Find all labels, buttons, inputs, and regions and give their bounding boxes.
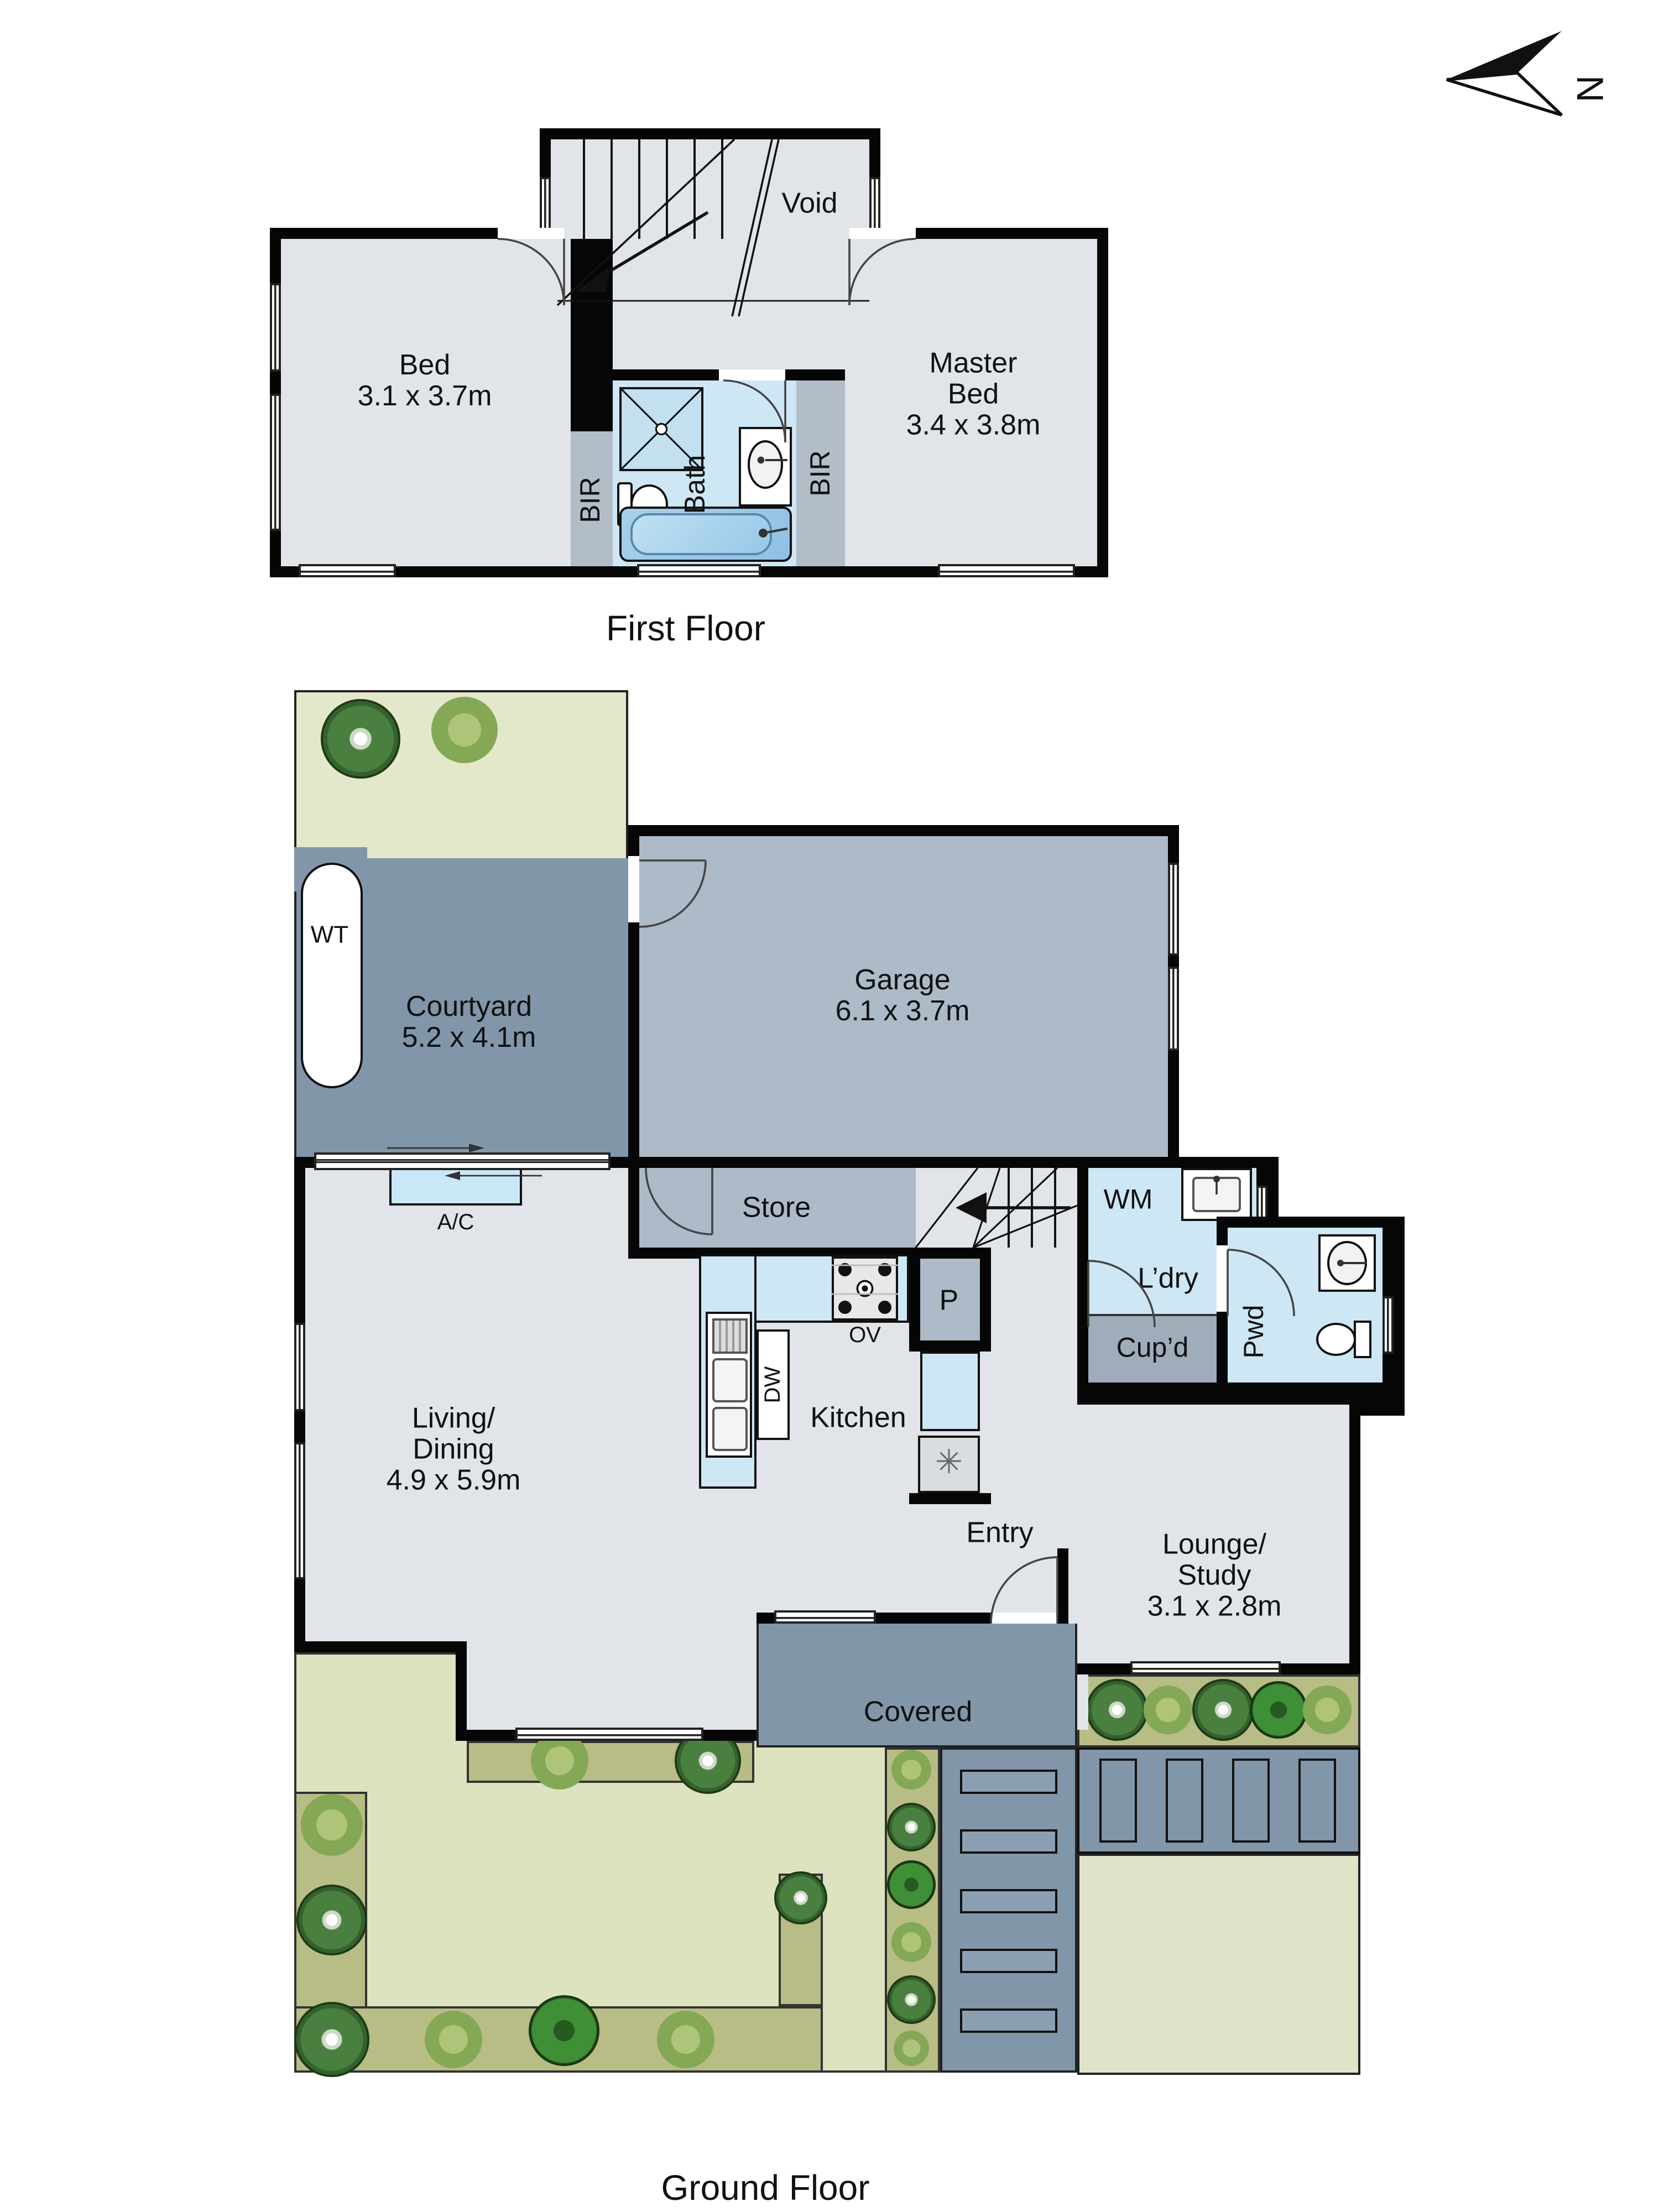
sink-drainer	[711, 1318, 747, 1354]
kitchen-counter-right	[920, 1352, 980, 1431]
dishwasher-label: DW	[761, 1366, 785, 1404]
plant-icon	[1303, 1686, 1352, 1734]
stove-icon	[832, 1256, 898, 1321]
ground-floor-title: Ground Floor	[661, 2173, 869, 2211]
lounge-label: Lounge/ Study 3.1 x 2.8m	[1147, 1529, 1282, 1620]
plant-icon	[529, 1995, 599, 2066]
plant-icon	[887, 1975, 936, 2024]
plant-icon	[321, 699, 400, 779]
courtyard-label: Courtyard 5.2 x 4.1m	[402, 992, 536, 1052]
plant-icon	[774, 1871, 827, 1924]
toilet-cistern-icon	[1354, 1321, 1371, 1358]
north-compass-icon: N	[1433, 13, 1632, 146]
plant-icon	[657, 2011, 714, 2068]
sink-bowl	[711, 1407, 747, 1451]
window	[293, 1442, 306, 1579]
plant-icon	[1192, 1679, 1254, 1741]
doorway	[498, 228, 564, 239]
plant-icon	[431, 697, 498, 763]
window	[299, 565, 396, 577]
gf-stair-treads	[987, 1168, 1077, 1248]
bath-label: Bath	[678, 455, 711, 514]
ff-hall	[573, 239, 845, 380]
bir-left-label: BIR	[575, 477, 606, 523]
deck-plank	[1298, 1759, 1336, 1843]
lounge-right-wall	[1349, 1394, 1360, 1674]
powder-basin-icon	[1327, 1241, 1367, 1285]
window	[269, 283, 281, 372]
stair-landing-gap	[617, 316, 754, 327]
plant-icon	[887, 1860, 936, 1909]
pantry-label: P	[940, 1285, 959, 1316]
first-floor-title: First Floor	[606, 614, 765, 651]
bathtub-inner	[630, 513, 772, 555]
window	[1130, 1662, 1281, 1674]
trough-basin	[1192, 1177, 1241, 1212]
basin-icon	[748, 440, 783, 489]
window	[1381, 1296, 1394, 1354]
kitchen-bottom-wall	[909, 1493, 991, 1504]
doorway	[849, 228, 916, 239]
sliding-door	[314, 1152, 611, 1170]
garage-label: Garage 6.1 x 3.7m	[836, 965, 970, 1026]
covered-porch	[757, 1624, 1077, 1747]
plant-icon	[1250, 1681, 1307, 1739]
deck-plank	[1232, 1759, 1270, 1843]
ac-label: A/C	[437, 1214, 474, 1237]
stepping-stone	[960, 1949, 1057, 1973]
doorway	[628, 856, 639, 922]
wm-label: WM	[1104, 1187, 1153, 1216]
floor-plan: N Void Bed 3.1 x 3.7m Master Bed 3.4 x 3	[0, 0, 1659, 2212]
laundry-label: L’dry	[1138, 1263, 1198, 1293]
window	[938, 565, 1075, 577]
water-tank-label: WT	[311, 925, 348, 951]
plant-icon	[887, 1803, 936, 1851]
bed-room-label: Bed 3.1 x 3.7m	[358, 350, 492, 411]
ac-unit-icon	[389, 1168, 522, 1206]
window	[293, 1323, 306, 1411]
plant-icon	[301, 1794, 363, 1856]
doorway	[991, 1613, 1057, 1624]
deck-plank	[1166, 1759, 1203, 1843]
entry-label: Entry	[966, 1517, 1033, 1548]
plant-icon	[294, 2002, 369, 2077]
bir-right-label: BIR	[805, 450, 836, 496]
powder-label: Pwd	[1239, 1305, 1270, 1358]
doorway	[719, 369, 785, 380]
water-tank-icon	[301, 863, 363, 1088]
ff-wall-strip	[571, 239, 613, 431]
stepping-stone	[960, 1889, 1057, 1913]
stepping-stone	[960, 2008, 1057, 2033]
plant-icon	[1144, 1686, 1192, 1734]
plant-icon	[894, 2031, 929, 2066]
sink-bowl	[711, 1358, 747, 1402]
compass-letter: N	[1569, 75, 1611, 102]
driveway	[1077, 1854, 1360, 2075]
window	[774, 1611, 876, 1624]
plant-icon	[891, 1922, 931, 1962]
cupboard-label: Cup’d	[1117, 1335, 1189, 1364]
master-room-label: Master Bed 3.4 x 3.8m	[906, 348, 1041, 439]
plant-icon	[891, 1750, 931, 1790]
fridge-symbol: ✳	[935, 1447, 963, 1482]
plant-icon	[296, 1885, 367, 1955]
gf-bottom-wall-a	[294, 1641, 467, 1652]
plant-icon	[1086, 1679, 1148, 1741]
doorway	[1217, 1245, 1228, 1312]
window	[637, 565, 761, 577]
plant-icon	[425, 2011, 482, 2068]
stepping-stone	[960, 1829, 1057, 1854]
window	[1167, 863, 1180, 956]
toilet-bowl-icon	[1316, 1323, 1356, 1356]
void-label: Void	[781, 188, 837, 218]
hall-right-wall	[1077, 1157, 1088, 1405]
oven-label: OV	[849, 1327, 881, 1350]
window	[269, 394, 281, 531]
kitchen-label: Kitchen	[810, 1402, 906, 1433]
sliding-window	[515, 1728, 703, 1741]
store-label: Store	[742, 1192, 811, 1223]
window	[1167, 967, 1180, 1051]
deck-plank	[1099, 1759, 1137, 1843]
gf-step-wall	[456, 1641, 467, 1741]
covered-label: Covered	[864, 1697, 973, 1727]
living-label: Living/ Dining 4.9 x 5.9m	[387, 1403, 521, 1494]
stepping-stone	[960, 1770, 1057, 1794]
